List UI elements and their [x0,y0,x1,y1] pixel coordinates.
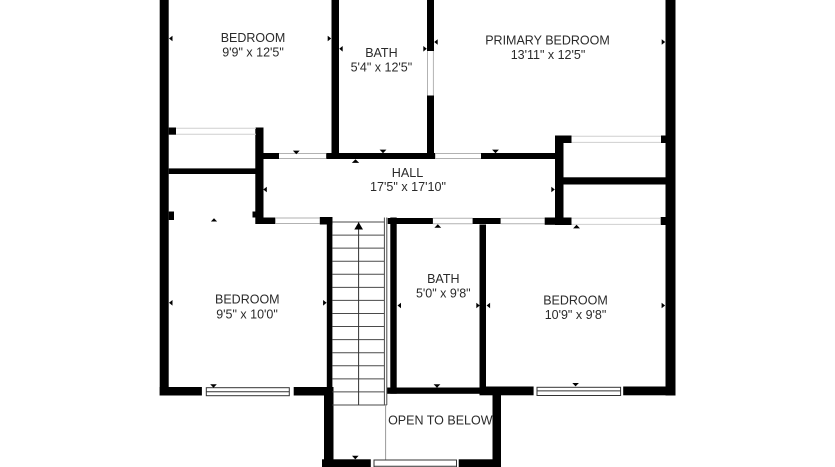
svg-text:9'9" x 12'5": 9'9" x 12'5" [222,46,284,60]
svg-text:BEDROOM: BEDROOM [543,294,608,308]
svg-text:5'4" x 12'5": 5'4" x 12'5" [351,60,413,74]
svg-text:BEDROOM: BEDROOM [221,31,286,45]
svg-text:BATH: BATH [427,272,459,286]
svg-text:9'5" x 10'0": 9'5" x 10'0" [216,307,278,321]
svg-text:HALL: HALL [392,166,424,180]
svg-text:13'11" x 12'5": 13'11" x 12'5" [511,48,586,62]
svg-text:BATH: BATH [365,46,397,60]
svg-text:5'0" x 9'8": 5'0" x 9'8" [416,286,471,300]
svg-text:10'9" x 9'8": 10'9" x 9'8" [545,308,607,322]
svg-text:PRIMARY BEDROOM: PRIMARY BEDROOM [485,34,610,48]
svg-text:17'5" x 17'10": 17'5" x 17'10" [370,180,446,194]
svg-text:OPEN TO BELOW: OPEN TO BELOW [388,414,493,428]
svg-text:BEDROOM: BEDROOM [215,293,280,307]
